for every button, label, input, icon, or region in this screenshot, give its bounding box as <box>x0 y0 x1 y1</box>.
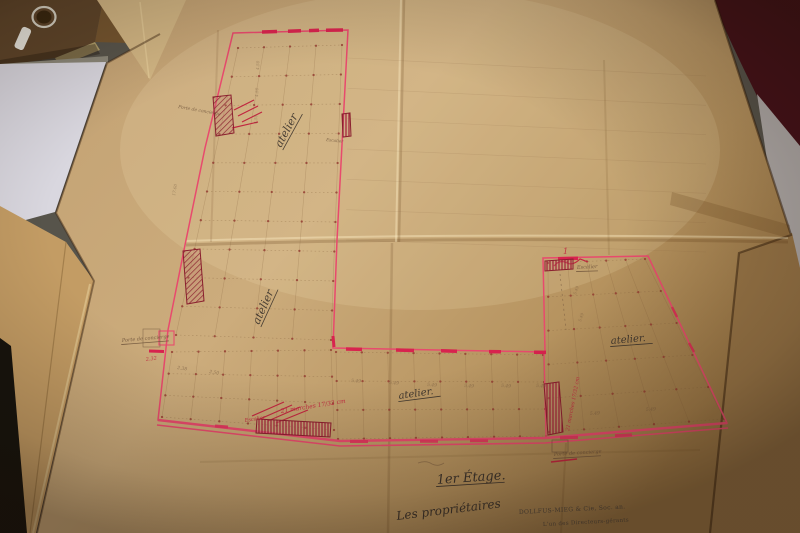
annotation-text: 5.49 <box>536 383 546 390</box>
column-dot <box>361 351 363 353</box>
column-dot <box>263 46 265 48</box>
annotation: 5.49 <box>464 383 474 390</box>
column-dot <box>248 398 250 400</box>
column-dot <box>249 374 251 376</box>
column-dot <box>252 336 254 338</box>
column-dot <box>293 308 295 310</box>
column-dot <box>190 418 192 420</box>
column-dot <box>637 291 639 293</box>
column-dot <box>440 408 442 410</box>
column-dot <box>285 74 287 76</box>
annotation: 5.49 <box>351 378 361 385</box>
annotation-text: Escalier <box>576 264 598 271</box>
column-dot <box>333 250 335 252</box>
column-dot <box>223 277 225 279</box>
column-dot <box>334 221 336 223</box>
column-dot <box>282 104 284 106</box>
plan-sheet <box>37 0 791 533</box>
column-dot <box>576 361 578 363</box>
column-dot <box>387 352 389 354</box>
column-dot <box>336 162 338 164</box>
column-dot <box>644 258 646 260</box>
column-dot <box>580 395 582 397</box>
column-dot <box>248 133 250 135</box>
annotation: 5.49 <box>501 383 511 390</box>
column-dot <box>214 335 216 337</box>
column-dot <box>618 426 620 428</box>
column-dot <box>517 381 519 383</box>
column-dot <box>605 259 607 261</box>
scene-svg: atelieratelieratelier.atelier.1er Étage.… <box>0 0 800 533</box>
column-dot <box>650 323 652 325</box>
column-dot <box>516 353 518 355</box>
column-dot <box>438 352 440 354</box>
sheet-highlight <box>120 0 720 310</box>
column-dot <box>231 76 233 78</box>
column-dot <box>303 191 305 193</box>
column-dot <box>592 293 594 295</box>
column-dot <box>362 409 364 411</box>
column-dot <box>298 250 300 252</box>
column-dot <box>195 373 197 375</box>
column-dot <box>675 322 677 324</box>
column-dot <box>336 409 338 411</box>
staircase <box>183 249 204 304</box>
column-dot <box>228 248 230 250</box>
column-dot <box>547 329 549 331</box>
column-dot <box>222 374 224 376</box>
column-dot <box>643 390 645 392</box>
column-dot <box>605 359 607 361</box>
column-dot <box>335 351 337 353</box>
annotation: 5.49 <box>590 410 601 417</box>
column-dot <box>168 373 170 375</box>
column-dot <box>175 334 177 336</box>
column-dot <box>331 309 333 311</box>
column-dot <box>289 45 291 47</box>
column-dot <box>308 133 310 135</box>
annotation: 5.49 <box>646 406 657 413</box>
annotation-text: 5.49 <box>464 383 474 390</box>
column-dot <box>219 306 221 308</box>
column-dot <box>301 220 303 222</box>
column-dot <box>675 388 677 390</box>
annotation: 4.50 <box>254 87 259 98</box>
column-dot <box>332 280 334 282</box>
column-dot <box>315 45 317 47</box>
column-dot <box>339 103 341 105</box>
column-dot <box>304 401 306 403</box>
column-dot <box>465 380 467 382</box>
annotation: 5.49 <box>427 382 437 389</box>
annotation: 4.50 <box>255 60 260 71</box>
column-dot <box>224 350 226 352</box>
column-dot <box>573 328 575 330</box>
column-dot <box>634 358 636 360</box>
column-dot <box>260 278 262 280</box>
annotation-text: 5.49 <box>351 378 361 385</box>
column-dot <box>341 44 343 46</box>
column-dot <box>303 349 305 351</box>
column-dot <box>267 220 269 222</box>
column-dot <box>583 428 585 430</box>
column-dot <box>253 104 255 106</box>
column-dot <box>263 249 265 251</box>
annotation-text: 1 <box>563 247 568 256</box>
column-dot <box>310 103 312 105</box>
column-dot <box>304 375 306 377</box>
column-dot <box>296 279 298 281</box>
column-dot <box>333 429 335 431</box>
column-dot <box>181 305 183 307</box>
column-dot <box>161 416 163 418</box>
column-dot <box>389 437 391 439</box>
annotation: 4.50 <box>253 114 258 125</box>
annotation: 1 <box>563 247 568 256</box>
annotation-text: 4.50 <box>255 60 260 71</box>
column-dot <box>335 191 337 193</box>
column-dot <box>688 420 690 422</box>
column-dot <box>331 376 333 378</box>
column-dot <box>363 437 365 439</box>
annotation-text: 5.49 <box>501 383 511 390</box>
column-dot <box>439 380 441 382</box>
box-finger-hole <box>37 11 52 24</box>
annotation-text: 5.49 <box>427 382 437 389</box>
column-dot <box>305 162 307 164</box>
column-dot <box>276 375 278 377</box>
column-dot <box>412 352 414 354</box>
column-dot <box>250 350 252 352</box>
column-dot <box>624 325 626 327</box>
column-dot <box>233 220 235 222</box>
column-dot <box>212 162 214 164</box>
annotation: 5.49 <box>389 380 399 387</box>
column-dot <box>492 408 494 410</box>
column-dot <box>413 380 415 382</box>
column-dot <box>192 396 194 398</box>
column-dot <box>291 338 293 340</box>
annotation: 5.49 <box>536 383 546 390</box>
column-dot <box>271 191 273 193</box>
column-dot <box>340 73 342 75</box>
column-dot <box>599 326 601 328</box>
column-dot <box>570 294 572 296</box>
column-dot <box>338 132 340 134</box>
column-dot <box>277 350 279 352</box>
column-dot <box>611 393 613 395</box>
column-dot <box>220 397 222 399</box>
photo-scene: atelieratelieratelier.atelier.1er Étage.… <box>0 0 800 533</box>
column-dot <box>330 349 332 351</box>
column-dot <box>164 394 166 396</box>
column-dot <box>258 75 260 77</box>
column-dot <box>660 290 662 292</box>
column-dot <box>653 423 655 425</box>
column-dot <box>200 219 202 221</box>
column-dot <box>206 190 208 192</box>
column-dot <box>243 162 245 164</box>
annotation-text: 5.49 <box>646 406 657 413</box>
column-dot <box>547 296 549 298</box>
column-dot <box>518 408 520 410</box>
annotation-text: 5.49 <box>389 380 399 387</box>
column-dot <box>490 353 492 355</box>
column-dot <box>388 409 390 411</box>
column-dot <box>276 400 278 402</box>
column-dot <box>218 420 220 422</box>
window-dash-right-wing-top <box>558 258 578 259</box>
column-dot <box>414 408 416 410</box>
column-dot <box>361 380 363 382</box>
column-dot <box>624 259 626 261</box>
column-dot <box>274 162 276 164</box>
column-dot <box>312 74 314 76</box>
annotation-text: 4.50 <box>254 87 259 98</box>
column-dot <box>336 380 338 382</box>
column-dot <box>662 356 664 358</box>
column-dot <box>491 381 493 383</box>
column-dot <box>466 408 468 410</box>
column-dot <box>197 351 199 353</box>
column-dot <box>691 354 693 356</box>
annotation-text: 5.49 <box>590 410 601 417</box>
staircase <box>545 259 573 271</box>
column-dot <box>464 353 466 355</box>
annotation-text: 4.50 <box>253 114 258 125</box>
column-dot <box>615 292 617 294</box>
column-dot <box>171 351 173 353</box>
staircase <box>342 113 351 137</box>
column-dot <box>238 191 240 193</box>
column-dot <box>547 363 549 365</box>
column-dot <box>237 47 239 49</box>
